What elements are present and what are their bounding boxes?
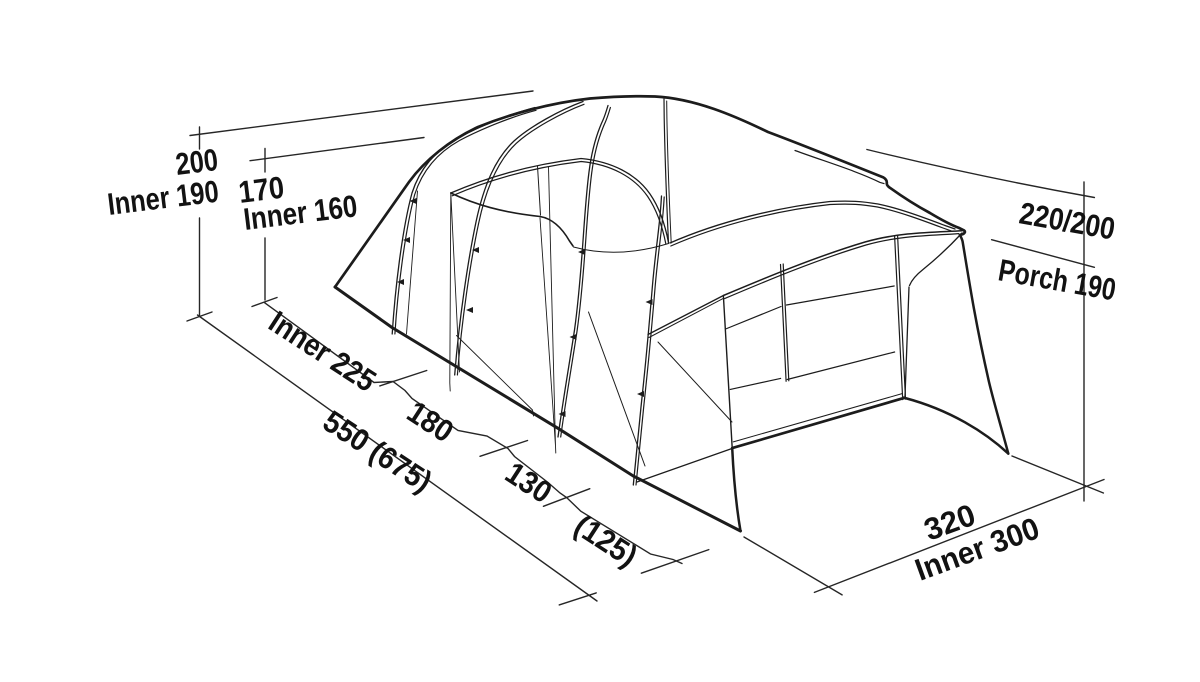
svg-text:130: 130 [499,456,558,511]
svg-text:Inner 190: Inner 190 [106,174,221,222]
svg-text:180: 180 [401,395,460,450]
svg-text:220/200: 220/200 [1017,197,1118,248]
svg-text:Porch 190: Porch 190 [996,253,1119,307]
svg-text:Inner 225: Inner 225 [262,305,381,399]
svg-text:(125): (125) [568,509,643,574]
